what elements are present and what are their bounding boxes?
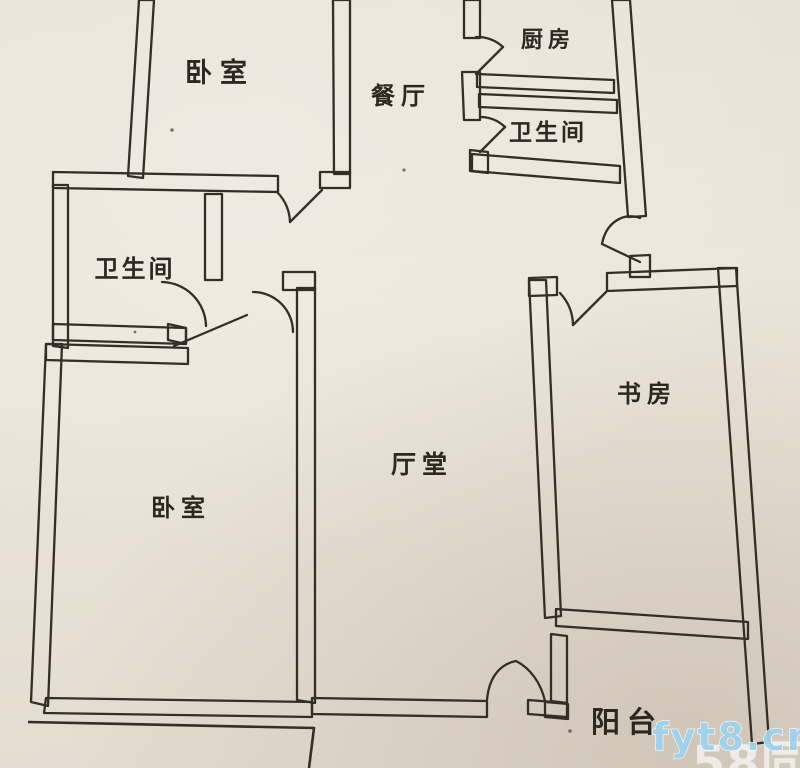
door-leaf: [476, 47, 503, 74]
door-leaf: [480, 127, 505, 152]
floorplan-photo: 卧室 餐厅 厨房 卫生间 卫生间 厅堂 书房 卧室 阳台 58同城 fyt8.c…: [0, 0, 800, 768]
door-arc: [277, 192, 290, 222]
wall-segment: [464, 0, 480, 38]
wall-segment: [53, 172, 278, 192]
wall-segment: [31, 344, 62, 706]
watermark-fyt8: fyt8.cn: [652, 715, 800, 759]
room-label-study: 书房: [617, 380, 677, 408]
wall-segment: [44, 698, 312, 717]
room-label-hall: 厅堂: [391, 450, 453, 479]
wall-segment: [479, 94, 617, 113]
wall-segment: [477, 74, 614, 93]
door-arc: [560, 293, 573, 325]
wall-segment: [312, 698, 487, 717]
balcony-door-arch: [487, 661, 545, 701]
watermarks: 58同城 fyt8.cn: [652, 715, 800, 768]
paper-specks: [134, 128, 572, 733]
wall-segment: [551, 634, 567, 703]
room-labels: 卧室 餐厅 厨房 卫生间 卫生间 厅堂 书房 卧室 阳台: [95, 27, 678, 739]
room-label-bedroom-top-left: 卧室: [185, 57, 255, 89]
wall-segment: [53, 324, 186, 344]
room-label-dining-room: 餐厅: [371, 82, 431, 110]
wall-segment: [528, 700, 567, 717]
floorplan-drawing: 卧室 餐厅 厨房 卫生间 卫生间 厅堂 书房 卧室 阳台 58同城 fyt8.c…: [0, 0, 800, 768]
wall-segment: [529, 280, 561, 618]
room-label-bedroom-bottom: 卧室: [151, 494, 211, 522]
wall-segment: [128, 0, 154, 178]
door-leaf: [290, 190, 322, 222]
room-label-bathroom-right: 卫生间: [509, 120, 587, 146]
wall-segment: [718, 268, 769, 744]
room-label-bathroom-left: 卫生间: [95, 255, 176, 283]
wall-segment: [297, 288, 315, 703]
room-label-kitchen: 厨房: [521, 27, 575, 53]
door-leaf: [573, 291, 607, 325]
wall-segment: [472, 154, 620, 183]
door-arc: [162, 282, 206, 326]
door-arc: [253, 292, 293, 332]
wall-segment: [556, 609, 748, 639]
outer-boundary-line: [28, 722, 314, 768]
wall-segment: [333, 0, 350, 174]
wall-segment: [205, 194, 222, 280]
door-arc: [480, 117, 505, 127]
